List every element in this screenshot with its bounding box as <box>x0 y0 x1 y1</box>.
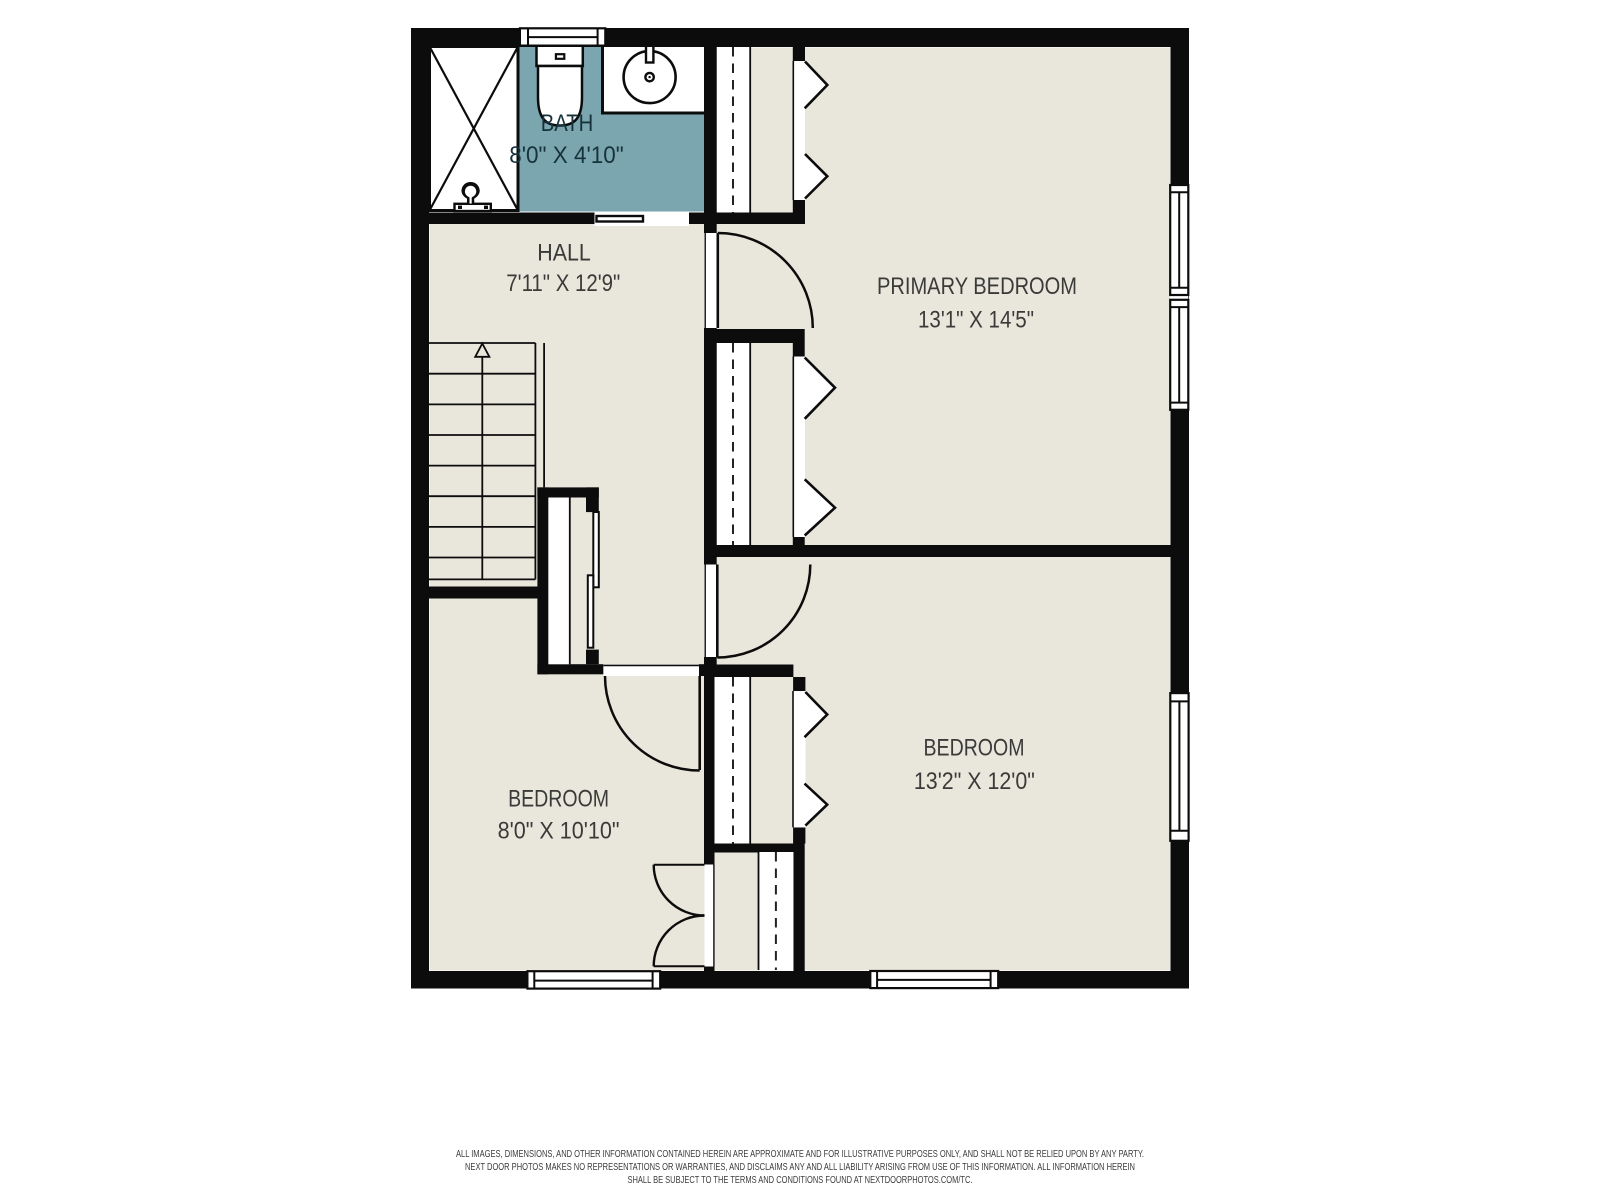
svg-text:BATH: BATH <box>541 110 594 137</box>
svg-text:13'2" X 12'0": 13'2" X 12'0" <box>914 768 1035 795</box>
svg-text:NEXT DOOR PHOTOS MAKES NO REPR: NEXT DOOR PHOTOS MAKES NO REPRESENTATION… <box>465 1162 1135 1173</box>
svg-text:PRIMARY BEDROOM: PRIMARY BEDROOM <box>877 273 1077 300</box>
svg-text:8'0" X 10'10": 8'0" X 10'10" <box>498 817 620 844</box>
svg-text:SHALL BE SUBJECT TO THE TERMS: SHALL BE SUBJECT TO THE TERMS AND CONDIT… <box>628 1175 973 1186</box>
svg-text:BEDROOM: BEDROOM <box>508 786 609 813</box>
svg-text:ALL IMAGES, DIMENSIONS, AND OT: ALL IMAGES, DIMENSIONS, AND OTHER INFORM… <box>456 1149 1144 1160</box>
svg-text:13'1" X 14'5": 13'1" X 14'5" <box>918 307 1034 334</box>
svg-text:7'11" X 12'9": 7'11" X 12'9" <box>506 270 620 297</box>
svg-text:BEDROOM: BEDROOM <box>924 735 1025 762</box>
svg-text:8'0" X 4'10": 8'0" X 4'10" <box>509 142 624 169</box>
svg-text:HALL: HALL <box>537 240 591 267</box>
